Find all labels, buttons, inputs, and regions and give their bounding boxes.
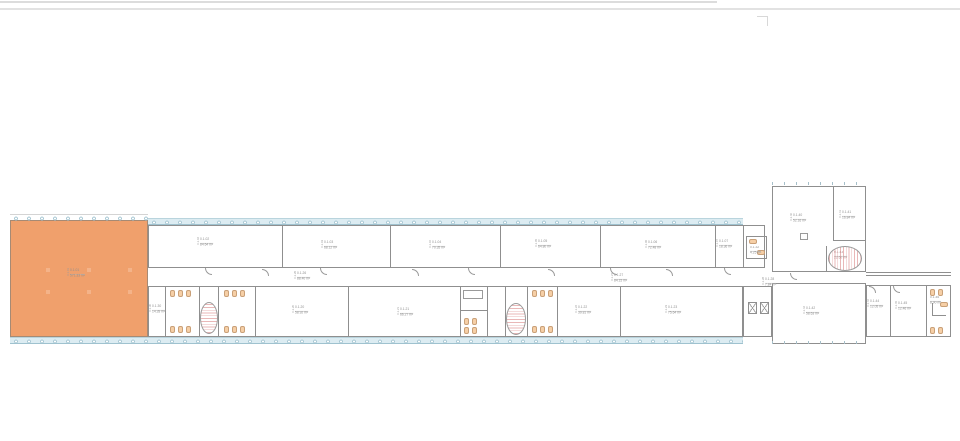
wall-segment [282, 225, 283, 268]
column-symbol [800, 233, 808, 240]
stair-oval-1 [200, 302, 218, 334]
room-label: 0.1.20 0.1.2058.92 m² [295, 306, 308, 315]
wall-segment [557, 286, 558, 337]
wall-segment [390, 225, 391, 268]
elevator-symbol [748, 302, 757, 314]
top-rule-full [0, 8, 960, 10]
top-rule-left [0, 1, 717, 3]
door-arc [790, 273, 797, 280]
lower-room-strip [148, 286, 743, 337]
wall-segment [866, 272, 951, 273]
door-arc [320, 268, 327, 275]
wall-segment [505, 286, 506, 337]
wall-segment [460, 286, 461, 337]
column-mark [87, 290, 91, 294]
door-arc [468, 268, 475, 275]
wall-segment [620, 286, 621, 337]
door-arc [666, 269, 673, 276]
facade-band-over-hall [10, 214, 148, 221]
wall-segment [833, 240, 866, 241]
room-label: 0.1.05 0.1.0564.80 m² [538, 240, 551, 249]
corridor-label: 0.1.27 0.1.2784.15 m² [614, 274, 627, 283]
table-symbol [463, 290, 483, 299]
window-ticks [772, 341, 866, 344]
wall-segment [926, 285, 927, 337]
stair-oval-2 [506, 303, 526, 335]
wall-segment [165, 286, 166, 337]
room-label: 0.1.03 0.1.0368.12 m² [324, 241, 337, 250]
corridor-label: 0.1.26 0.1.2688.40 m² [297, 272, 310, 281]
facade-band-top [148, 218, 743, 225]
floor-plan-canvas[interactable]: 0.1.01 0.1.01571.33 m² 0.1.02 0.1.0284.6… [0, 0, 960, 441]
door-arc [205, 268, 212, 275]
room-label: 0.1.07 0.1.0718.36 m² [719, 240, 732, 249]
selected-room-highlight[interactable] [10, 220, 148, 337]
elevator-symbol [760, 302, 769, 314]
fixture [749, 239, 757, 244]
door-arc [548, 269, 555, 276]
room-label: 0.1.44 0.1.4412.05 m² [870, 300, 883, 309]
room-label: 0.1.42 0.1.4258.63 m² [806, 307, 819, 316]
partition [932, 315, 946, 316]
room-label: 0.1.04 0.1.0470.35 m² [432, 241, 445, 250]
corridor-label: 0.1.28 0.1.287.84 m² [765, 278, 776, 287]
room-label: 0.1.06 0.1.0672.48 m² [648, 241, 661, 250]
room-label: 0.1.02 0.1.0284.64 m² [200, 238, 213, 247]
wall-segment [487, 286, 488, 337]
room-label: 0.1.41 0.1.4116.84 m² [842, 211, 855, 220]
door-arc [724, 268, 731, 275]
column-mark [128, 290, 132, 294]
room-label: 0.1.21 0.1.2166.27 m² [400, 308, 413, 317]
upper-room-strip [148, 225, 765, 268]
stair-label: 0.1.4322.60 m² [834, 251, 847, 260]
facade-band-bottom [10, 337, 743, 344]
room-label: 0.1.01 0.1.01571.33 m² [70, 269, 85, 278]
wall-segment [500, 225, 501, 268]
window-ticks [772, 182, 866, 185]
column-mark [87, 268, 91, 272]
wall-segment [826, 246, 827, 272]
wall-segment [348, 286, 349, 337]
room-label: 0.1.45 0.1.4512.46 m² [898, 302, 911, 311]
room-label: 0.1.22 0.1.2239.81 m² [578, 306, 591, 315]
wall-segment [527, 286, 528, 337]
column-mark [128, 268, 132, 272]
corner-mark [757, 16, 768, 26]
door-arc [262, 269, 269, 276]
wall-segment [866, 275, 951, 276]
wall-segment [833, 186, 834, 240]
wall-segment [218, 286, 219, 337]
column-mark [46, 268, 50, 272]
wall-segment [460, 310, 487, 311]
room-label: 0.1.324.25 m² [750, 246, 761, 255]
wall-segment [255, 286, 256, 337]
room-label: 0.1.30 0.1.3014.28 m² [152, 305, 165, 314]
room-label: 0.1.40 0.1.4052.16 m² [793, 214, 806, 223]
wall-segment [890, 285, 891, 337]
door-arc [412, 269, 419, 276]
room-label: 0.1.23 0.1.2375.64 m² [668, 306, 681, 315]
wall-segment [743, 225, 744, 268]
column-mark [46, 290, 50, 294]
wall-segment [600, 225, 601, 268]
room-label: 0.1.468.90 m² [930, 296, 941, 305]
